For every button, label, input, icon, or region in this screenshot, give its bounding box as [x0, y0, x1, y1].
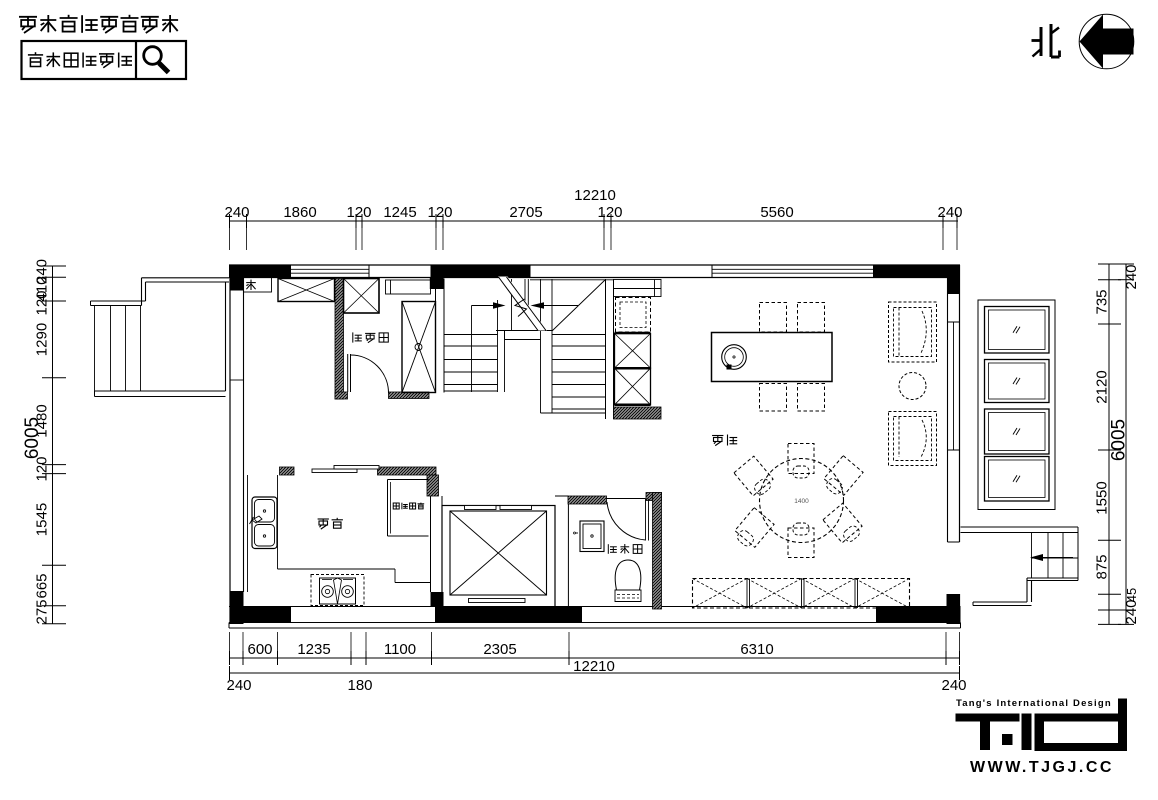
- svg-text:1400: 1400: [794, 498, 809, 505]
- svg-text:1100: 1100: [384, 641, 416, 658]
- svg-text:1860: 1860: [283, 204, 316, 221]
- svg-text:240: 240: [1123, 264, 1140, 289]
- svg-text:WWW.TJGJ.CC: WWW.TJGJ.CC: [970, 759, 1114, 776]
- svg-text:665: 665: [34, 573, 51, 598]
- svg-text:875: 875: [1094, 554, 1111, 579]
- svg-text:12210: 12210: [573, 658, 615, 675]
- svg-text:2305: 2305: [483, 641, 516, 658]
- svg-text:1290: 1290: [34, 323, 51, 356]
- svg-text:240: 240: [941, 677, 966, 694]
- svg-text:6005: 6005: [1109, 419, 1130, 461]
- svg-text:120: 120: [346, 204, 371, 221]
- svg-text:180: 180: [347, 677, 372, 694]
- svg-text:45: 45: [1124, 588, 1139, 602]
- svg-text:2120: 2120: [1094, 370, 1111, 403]
- svg-text:735: 735: [1094, 289, 1111, 314]
- svg-text:120: 120: [34, 456, 51, 481]
- svg-text:600: 600: [247, 641, 272, 658]
- svg-text:1545: 1545: [34, 503, 51, 536]
- svg-text:120: 120: [597, 204, 622, 221]
- svg-text:1245: 1245: [383, 204, 416, 221]
- svg-text:1550: 1550: [1094, 481, 1111, 514]
- svg-text:275: 275: [34, 599, 51, 624]
- svg-text:5560: 5560: [760, 204, 793, 221]
- svg-text:6310: 6310: [740, 641, 773, 658]
- svg-text:240: 240: [937, 204, 962, 221]
- svg-text:6005: 6005: [22, 417, 43, 459]
- svg-text:12210: 12210: [574, 187, 616, 204]
- svg-text:240: 240: [1123, 599, 1140, 624]
- svg-text:120: 120: [427, 204, 452, 221]
- svg-text:240: 240: [226, 677, 251, 694]
- svg-text:240: 240: [224, 204, 249, 221]
- svg-text:Tang's International Design: Tang's International Design: [956, 698, 1112, 709]
- svg-text:1235: 1235: [297, 641, 330, 658]
- svg-text:120: 120: [34, 290, 51, 315]
- svg-text:2705: 2705: [509, 204, 542, 221]
